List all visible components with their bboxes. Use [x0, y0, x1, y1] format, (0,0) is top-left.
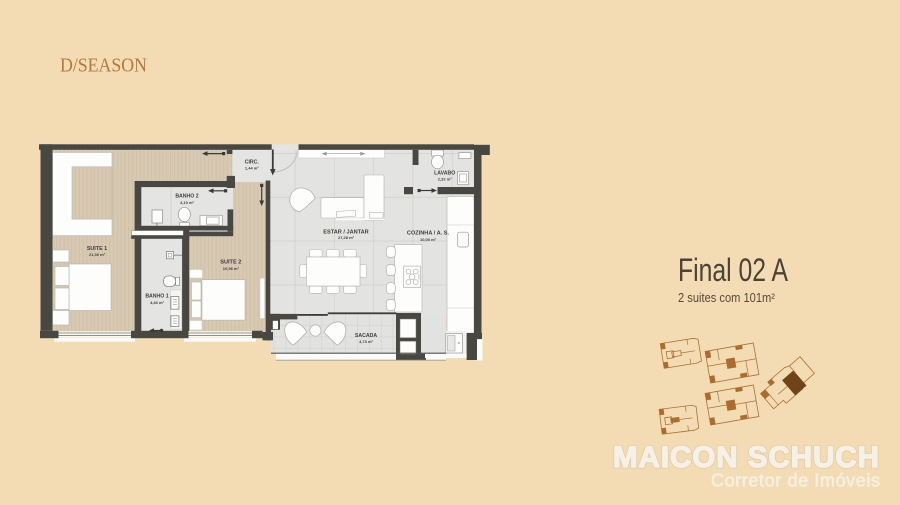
svg-text:2,32 m²: 2,32 m²	[438, 177, 452, 182]
svg-text:10,00 m²: 10,00 m²	[420, 237, 437, 242]
svg-text:21,30 m²: 21,30 m²	[89, 252, 106, 257]
svg-text:2 suites com 101m²: 2 suites com 101m²	[678, 290, 776, 305]
svg-text:1,44 m²: 1,44 m²	[245, 166, 259, 171]
svg-text:10,96 m²: 10,96 m²	[223, 266, 240, 271]
svg-text:27,28 m²: 27,28 m²	[338, 235, 355, 240]
svg-text:4,10 m²: 4,10 m²	[180, 200, 194, 205]
svg-text:MAICON SCHUCH: MAICON SCHUCH	[613, 441, 880, 474]
svg-text:D/SEASON: D/SEASON	[60, 55, 147, 77]
svg-text:BANHO 1: BANHO 1	[145, 294, 168, 300]
svg-text:BANHO 2: BANHO 2	[175, 194, 198, 200]
svg-text:COZINHA / A. S.: COZINHA / A. S.	[407, 231, 450, 237]
svg-text:SUITE 2: SUITE 2	[220, 260, 241, 266]
svg-text:4,46 m²: 4,46 m²	[150, 300, 164, 305]
svg-text:Corretor de Imóveis: Corretor de Imóveis	[711, 471, 880, 491]
svg-text:Final 02 A: Final 02 A	[678, 252, 789, 288]
svg-text:4,73 m²: 4,73 m²	[359, 339, 373, 344]
